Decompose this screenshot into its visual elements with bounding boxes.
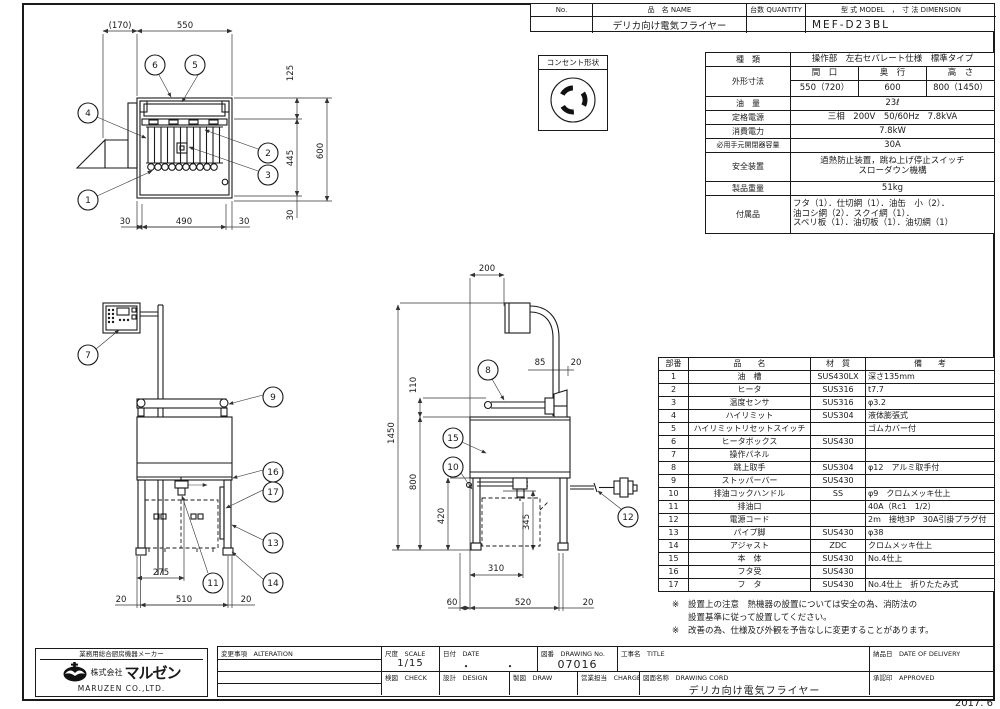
spec-consumption-value: 7.8kW <box>791 125 995 139</box>
date-value: ・ ・ <box>443 658 534 671</box>
col-no-header: No. <box>531 4 593 17</box>
part-name: 本 体 <box>689 553 811 566</box>
table-row: 1 油 槽 SUS430LX 深さ135mm <box>659 371 995 384</box>
scale-label: 尺度 SCALE <box>385 648 436 658</box>
outlet-label: コンセント形状 <box>539 56 607 70</box>
drawing-no-cell: 図番 DRAWING No. 07016 <box>537 647 617 671</box>
balloon-number: 6 <box>152 61 158 71</box>
part-no: 2 <box>659 384 689 397</box>
spec-width-label: 間 口 <box>791 67 859 81</box>
dimension-label: 550 <box>177 21 193 31</box>
part-material: SUS316 <box>811 397 866 410</box>
plan-view-drawing: (170) 550 125 445 30 600 30 490 30 <box>55 18 360 250</box>
dimension-label: 20 <box>241 595 252 605</box>
front-view-drawing: 275 20 510 20 7 9 16 17 13 14 11 <box>75 288 310 638</box>
part-no: 15 <box>659 553 689 566</box>
draw-cell: 製図 DRAW <box>509 671 577 695</box>
parts-header-material: 材 質 <box>811 358 866 371</box>
part-material: SUS430 <box>811 527 866 540</box>
product-no <box>531 17 593 33</box>
part-no: 8 <box>659 462 689 475</box>
part-material <box>811 449 866 462</box>
dimension-label: 420 <box>437 508 447 524</box>
parts-table: 部番 品 名 材 質 備 考 1 油 槽 SUS430LX 深さ135mm 2 … <box>658 357 995 592</box>
part-name: ヒータ <box>689 384 811 397</box>
design-label: 設計 DESIGN <box>443 672 506 682</box>
part-no: 5 <box>659 423 689 436</box>
spec-height-label: 高 さ <box>927 67 995 81</box>
dimension-label: 30 <box>286 210 296 221</box>
spec-depth-label: 奥 行 <box>859 67 927 81</box>
dimension-label: 110 <box>409 377 419 393</box>
parts-table-body: 1 油 槽 SUS430LX 深さ135mm 2 ヒータ SUS316 t7.7… <box>659 371 995 592</box>
part-name: 油 槽 <box>689 371 811 384</box>
part-note: φ38 <box>866 527 995 540</box>
note-1-line2: 設置基準に従って設置してください。 <box>688 612 917 625</box>
fryer-front-body <box>136 399 233 555</box>
note-mark: ※ <box>672 625 688 638</box>
charge-label: 営業担当 CHARGE <box>581 672 636 682</box>
part-note: No.4仕上 <box>866 553 995 566</box>
note-1: ※ 設置上の注意 熱機器の設置については安全の為、消防法の 設置基準に従って設置… <box>672 599 994 625</box>
alteration-row-line <box>218 659 381 660</box>
part-material <box>811 501 866 514</box>
power-cord-plug <box>570 478 637 497</box>
product-qty <box>747 17 806 33</box>
dimension-label: 510 <box>176 595 192 605</box>
part-no: 3 <box>659 397 689 410</box>
table-row: 2 ヒータ SUS316 t7.7 <box>659 384 995 397</box>
part-note <box>866 436 995 449</box>
date-cell: 日付 DATE ・ ・ <box>439 647 537 671</box>
part-material: SS <box>811 488 866 501</box>
balloon-number: 1 <box>85 196 91 206</box>
spec-height-value: 800（1450） <box>927 81 995 97</box>
spec-oil-value: 23ℓ <box>791 97 995 111</box>
product-name: デリカ向け電気フライヤー <box>593 17 747 33</box>
part-name: 操作パネル <box>689 449 811 462</box>
part-material: SUS430 <box>811 579 866 592</box>
alteration-row-line <box>218 683 381 684</box>
part-material: SUS430 <box>811 436 866 449</box>
part-note: t7.7 <box>866 384 995 397</box>
spec-safety-line2: スローダウン機構 <box>793 167 992 177</box>
fryer-side-body <box>467 417 571 550</box>
note-1-text: 設置上の注意 熱機器の設置については安全の為、消防法の 設置基準に従って設置して… <box>688 599 917 625</box>
part-no: 14 <box>659 540 689 553</box>
part-no: 11 <box>659 501 689 514</box>
dimension-label: 445 <box>286 150 296 166</box>
dimension-label: 20 <box>116 595 127 605</box>
note-mark: ※ <box>672 599 688 625</box>
parts-header-note: 備 考 <box>866 358 995 371</box>
balloon-13: 13 <box>232 525 283 553</box>
table-row: 15 本 体 SUS430 No.4仕上 <box>659 553 995 566</box>
dimension-label: 490 <box>176 217 192 227</box>
engineering-drawing-sheet: { "title_table": { "headers": { "no": "N… <box>0 0 1000 709</box>
spec-consumption-label: 消費電力 <box>706 125 791 139</box>
part-name: 排油口 <box>689 501 811 514</box>
part-material <box>811 514 866 527</box>
balloon-number: 16 <box>267 468 279 478</box>
dimension-label: 125 <box>286 65 296 81</box>
balloon-10: 10 <box>443 457 472 489</box>
company-stamp: 業務用総合厨房機器メーカー 株式会社 マルゼン MARUZEN CO.,LTD. <box>35 648 208 697</box>
spec-kind-value: 操作部 左右セパレート仕様 標準タイプ <box>791 53 995 67</box>
part-no: 6 <box>659 436 689 449</box>
scale-value: 1/15 <box>385 658 436 669</box>
company-logo-line: 株式会社 マルゼン <box>36 660 207 684</box>
drawing-name-cell: 図面名称 DRAWING CORD デリカ向け電気フライヤー <box>639 671 869 695</box>
balloon-number: 7 <box>85 351 91 361</box>
project-title-cell: 工事名 TITLE <box>617 647 869 671</box>
drawing-title-table: No. 品 名 NAME 台数 QUANTITY 型 式 MODEL ， 寸 法… <box>530 3 995 32</box>
part-name: 温度センサ <box>689 397 811 410</box>
balloon-number: 5 <box>192 61 198 71</box>
balloon-14: 14 <box>232 552 283 593</box>
table-row: 17 フ タ SUS430 No.4仕上 折りたたみ式 <box>659 579 995 592</box>
table-row: 9 ストッパーバー SUS430 <box>659 475 995 488</box>
spec-weight-value: 51kg <box>791 182 995 196</box>
part-name: ハイリミット <box>689 410 811 423</box>
dimension-label: 20 <box>571 358 582 368</box>
balloon-number: 10 <box>447 463 459 473</box>
company-prefix: 株式会社 <box>90 667 122 678</box>
drawing-no-label: 図番 DRAWING No. <box>541 648 614 658</box>
balloon-6: 6 <box>145 55 171 97</box>
part-material: SUS316 <box>811 384 866 397</box>
part-note: φ9 クロムメッキ仕上 <box>866 488 995 501</box>
dimension-label: 800 <box>409 474 419 490</box>
spec-power-value: 三相 200V 50/60Hz 7.8kVA <box>791 111 995 125</box>
part-material: ZDC <box>811 540 866 553</box>
title-block: 変更事項 ALTERATION 尺度 SCALE 1/15 日付 DATE ・ … <box>217 646 994 697</box>
balloon-number: 4 <box>85 109 91 119</box>
balloon-17: 17 <box>226 482 283 508</box>
spec-power-label: 定格電源 <box>706 111 791 125</box>
draw-label: 製図 DRAW <box>513 672 574 682</box>
table-row: 8 跳上取手 SUS304 φ12 アルミ取手付 <box>659 462 995 475</box>
part-no: 9 <box>659 475 689 488</box>
part-name: ハイリミットリセットスイッチ <box>689 423 811 436</box>
spec-safety-label: 安全装置 <box>706 153 791 182</box>
part-no: 1 <box>659 371 689 384</box>
balloon-number: 8 <box>485 366 491 376</box>
spec-width-value: 550（720） <box>791 81 859 97</box>
part-note: φ3.2 <box>866 397 995 410</box>
table-row: 12 電源コード 2m 接地3P 30A引掛プラグ付 <box>659 514 995 527</box>
fryer-plan-body <box>77 98 232 198</box>
dimension-label: 85 <box>535 358 546 368</box>
dimension-label: 600 <box>316 143 326 159</box>
balloon-number: 12 <box>622 513 633 523</box>
parts-header-no: 部番 <box>659 358 689 371</box>
part-note: クロムメッキ仕上 <box>866 540 995 553</box>
part-note: 40A（Rc1 1/2） <box>866 501 995 514</box>
spec-accessory-line3: スベリ板（1）．油切板（1）．油切網（1） <box>793 219 992 229</box>
part-material: SUS430 <box>811 475 866 488</box>
balloon-number: 14 <box>267 579 279 589</box>
delivery-date-label: 納品日 DATE OF DELIVERY <box>873 648 992 658</box>
balloon-12: 12 <box>598 491 638 527</box>
locking-plug-icon <box>539 70 607 130</box>
part-note <box>866 449 995 462</box>
dimension-label: 345 <box>522 514 532 530</box>
dimension-label: 60 <box>447 598 458 608</box>
product-model: MEF-D23BL <box>806 17 996 33</box>
balloon-9: 9 <box>229 387 283 407</box>
part-name: ストッパーバー <box>689 475 811 488</box>
table-row: 3 温度センサ SUS316 φ3.2 <box>659 397 995 410</box>
balloon-number: 3 <box>265 171 271 181</box>
balloon-5: 5 <box>182 55 205 102</box>
table-row: 6 ヒータボックス SUS430 <box>659 436 995 449</box>
company-name-en: MARUZEN CO.,LTD. <box>36 684 207 693</box>
spec-oil-label: 油 量 <box>706 97 791 111</box>
part-name: ヒータボックス <box>689 436 811 449</box>
control-panel <box>103 303 158 333</box>
table-row: 14 アジャスト ZDC クロムメッキ仕上 <box>659 540 995 553</box>
dimension-label: 20 <box>583 598 594 608</box>
part-name: フタ受 <box>689 566 811 579</box>
project-title-label: 工事名 TITLE <box>621 648 866 658</box>
spec-breaker-value: 30A <box>791 139 995 153</box>
front-dimension-labels: 275 20 510 20 <box>116 568 252 605</box>
note-2-text: 改善の為、仕様及び外観を予告なしに変更することがあります。 <box>688 625 934 638</box>
dimension-label: 30 <box>120 217 131 227</box>
balloon-number: 11 <box>207 579 218 589</box>
dimension-label: 1450 <box>387 422 397 444</box>
scale-cell: 尺度 SCALE 1/15 <box>381 647 439 671</box>
part-note: φ12 アルミ取手付 <box>866 462 995 475</box>
table-row: 4 ハイリミット SUS304 液体膨張式 <box>659 410 995 423</box>
note-2: ※ 改善の為、仕様及び外観を予告なしに変更することがあります。 <box>672 625 994 638</box>
dimension-label: (170) <box>109 21 132 31</box>
col-qty-header: 台数 QUANTITY <box>747 4 806 17</box>
maruzen-logo-icon <box>62 662 88 682</box>
drawing-name-label: 図面名称 DRAWING CORD <box>643 672 866 682</box>
part-name: 排油コックハンドル <box>689 488 811 501</box>
drawing-no-value: 07016 <box>541 658 614 671</box>
note-1-line1: 設置上の注意 熱機器の設置については安全の為、消防法の <box>688 599 917 612</box>
outlet-shape-box: コンセント形状 <box>538 55 608 131</box>
part-material: SUS430 <box>811 553 866 566</box>
balloon-4: 4 <box>78 103 146 138</box>
balloon-number: 13 <box>267 539 278 549</box>
spec-depth-value: 600 <box>859 81 927 97</box>
part-no: 12 <box>659 514 689 527</box>
part-material <box>811 423 866 436</box>
table-row: 7 操作パネル <box>659 449 995 462</box>
part-no: 4 <box>659 410 689 423</box>
part-no: 17 <box>659 579 689 592</box>
dimension-label: 310 <box>488 564 504 574</box>
part-material: SUS304 <box>811 462 866 475</box>
design-cell: 設計 DESIGN <box>439 671 509 695</box>
spec-dims-label: 外形寸法 <box>706 67 791 97</box>
company-name: マルゼン <box>124 662 180 683</box>
part-note: No.4仕上 折りたたみ式 <box>866 579 995 592</box>
check-label: 検図 CHECK <box>385 672 436 682</box>
spec-safety-value: 過熱防止装置，跳ね上げ停止スイッチスローダウン機構 <box>791 153 995 182</box>
table-row: 16 フタ受 SUS430 <box>659 566 995 579</box>
parts-header-name: 品 名 <box>689 358 811 371</box>
delivery-date-cell: 納品日 DATE OF DELIVERY <box>869 647 995 671</box>
part-no: 16 <box>659 566 689 579</box>
part-no: 13 <box>659 527 689 540</box>
part-material: SUS430LX <box>811 371 866 384</box>
drawing-name-value: デリカ向け電気フライヤー <box>643 682 866 695</box>
balloon-number: 2 <box>265 149 271 159</box>
table-row: 10 排油コックハンドル SS φ9 クロムメッキ仕上 <box>659 488 995 501</box>
balloon-number: 17 <box>267 488 278 498</box>
part-material: SUS430 <box>811 566 866 579</box>
balloon-16: 16 <box>233 462 283 482</box>
balloon-11: 11 <box>182 496 223 593</box>
part-note: ゴムカバー付 <box>866 423 995 436</box>
balloon-7: 7 <box>78 330 119 365</box>
part-note: 2m 接地3P 30A引掛プラグ付 <box>866 514 995 527</box>
spec-accessory-value: フタ（1）．仕切網（1）．油缶 小（2）．油コシ網（2）．スクイ網（1）．スベリ… <box>791 196 995 234</box>
part-note: 深さ135mm <box>866 371 995 384</box>
approved-cell: 承認印 APPROVED <box>869 671 995 695</box>
part-name: 電源コード <box>689 514 811 527</box>
part-no: 10 <box>659 488 689 501</box>
col-name-header: 品 名 NAME <box>593 4 747 17</box>
issue-date: 2017. 6 <box>933 698 993 709</box>
col-model-header: 型 式 MODEL ， 寸 法 DIMENSION <box>806 4 996 17</box>
alteration-label: 変更事項 ALTERATION <box>221 650 293 658</box>
part-note <box>866 475 995 488</box>
company-tagline: 業務用総合厨房機器メーカー <box>40 649 203 660</box>
spec-weight-label: 製品重量 <box>706 182 791 196</box>
part-note <box>866 566 995 579</box>
side-view-drawing: 200 1450 110 800 420 345 310 60 520 20 8… <box>378 258 660 636</box>
part-name: パイプ脚 <box>689 527 811 540</box>
spec-accessory-label: 付属品 <box>706 196 791 234</box>
part-name: フ タ <box>689 579 811 592</box>
balloon-number: 9 <box>270 393 276 403</box>
dimension-label: 520 <box>515 598 531 608</box>
part-material: SUS304 <box>811 410 866 423</box>
check-cell: 検図 CHECK <box>381 671 439 695</box>
charge-cell: 営業担当 CHARGE <box>577 671 639 695</box>
alteration-row-line <box>218 671 381 672</box>
part-name: 跳上取手 <box>689 462 811 475</box>
lift-handle <box>485 390 568 418</box>
table-row: 11 排油口 40A（Rc1 1/2） <box>659 501 995 514</box>
date-label: 日付 DATE <box>443 648 534 658</box>
installation-notes: ※ 設置上の注意 熱機器の設置については安全の為、消防法の 設置基準に従って設置… <box>672 599 994 638</box>
table-row: 13 パイプ脚 SUS430 φ38 <box>659 527 995 540</box>
dimension-label: 275 <box>153 568 169 578</box>
table-row: 5 ハイリミットリセットスイッチ ゴムカバー付 <box>659 423 995 436</box>
spec-breaker-label: 必用手元開閉器容量 <box>706 139 791 153</box>
dimension-label: 30 <box>239 217 250 227</box>
balloon-8: 8 <box>478 360 504 400</box>
part-name: アジャスト <box>689 540 811 553</box>
balloon-number: 15 <box>447 434 458 444</box>
spec-table: 種 類操作部 左右セパレート仕様 標準タイプ 外形寸法間 口奥 行高 さ 550… <box>705 52 995 234</box>
part-note: 液体膨張式 <box>866 410 995 423</box>
part-no: 7 <box>659 449 689 462</box>
approved-label: 承認印 APPROVED <box>873 672 992 682</box>
spec-kind-label: 種 類 <box>706 53 791 67</box>
dimension-label: 200 <box>479 264 495 274</box>
